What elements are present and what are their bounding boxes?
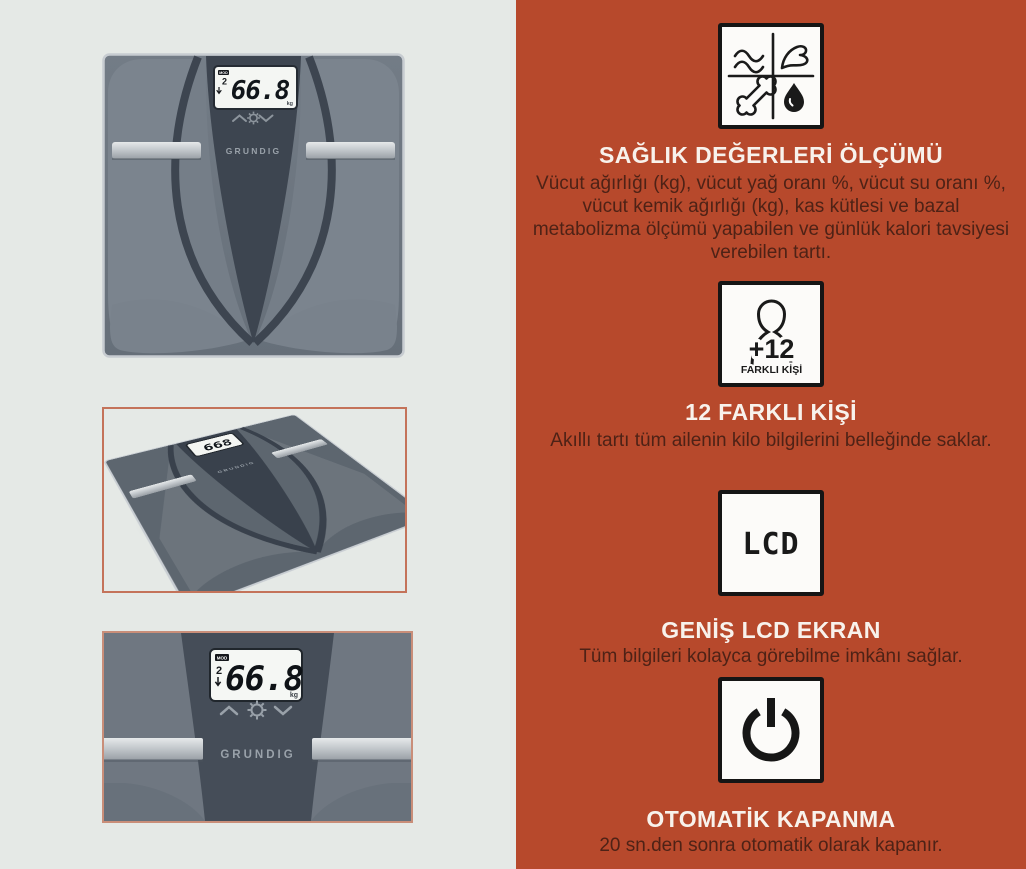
lcd-icon: LCD (722, 494, 820, 592)
user-number: 2 (222, 77, 227, 87)
weight-value: 66.8 (231, 76, 290, 106)
user-number: 2 (216, 665, 222, 677)
promo-page: MOD 2 66.8 kg GRUNDIG (0, 0, 1026, 869)
bone-icon (738, 76, 776, 114)
multi-user-icon-box: +12 FARKLI KİŞİ (718, 281, 824, 387)
muscle-arm-icon (782, 46, 807, 68)
brand-logo: GRUNDIG (220, 749, 295, 761)
feature-description: Akıllı tartı tüm ailenin kilo bilgilerin… (532, 429, 1010, 452)
scale-angled-graphic: 668 GRUNDIG (104, 414, 405, 591)
scale-closeup-graphic: MOD 2 66.8 kg GRUNDIG (104, 633, 411, 821)
health-metrics-icon (722, 27, 820, 125)
feature-description: Vücut ağırlığı (kg), vücut yağ oranı %, … (532, 172, 1010, 264)
water-drop-icon (784, 83, 804, 112)
feature-title: SAĞLIK DEĞERLERİ ÖLÇÜMÜ (516, 142, 1026, 168)
product-photo-top-view: MOD 2 66.8 kg GRUNDIG (102, 53, 405, 358)
feature-description: Tüm bilgileri kolayca görebilme imkânı s… (532, 645, 1010, 668)
product-photo-angled-view: 668 GRUNDIG (104, 409, 405, 591)
health-metrics-icon-box (718, 23, 824, 129)
brand-logo: GRUNDIG (226, 146, 282, 156)
product-photo-closeup-frame: MOD 2 66.8 kg GRUNDIG (102, 631, 413, 823)
electrode-strip-left (104, 738, 203, 760)
product-photos-panel: MOD 2 66.8 kg GRUNDIG (0, 0, 516, 869)
lcd-icon-box: LCD (718, 490, 824, 596)
feature-title: GENİŞ LCD EKRAN (516, 617, 1026, 643)
user-count-badge: +12 (749, 334, 795, 364)
product-photo-angled-frame: 668 GRUNDIG (102, 407, 407, 593)
svg-text:MOD: MOD (219, 71, 228, 75)
feature-title: 12 FARKLI KİŞİ (516, 399, 1026, 425)
electrode-strip-right (306, 142, 395, 159)
power-icon-box (718, 677, 824, 783)
scale-top-view-graphic: MOD 2 66.8 kg GRUNDIG (102, 53, 405, 358)
water-waves-icon (735, 51, 763, 62)
user-count-label: FARKLI KİŞİ (741, 363, 802, 376)
feature-title: OTOMATİK KAPANMA (516, 806, 1026, 832)
unit-label: kg (287, 101, 293, 107)
electrode-strip-left (112, 142, 201, 159)
multi-user-icon: +12 FARKLI KİŞİ (722, 285, 820, 383)
feature-description: 20 sn.den sonra otomatik olarak kapanır. (532, 834, 1010, 857)
unit-label: kg (290, 692, 298, 699)
lcd-glyph: LCD (742, 527, 799, 562)
features-panel: SAĞLIK DEĞERLERİ ÖLÇÜMÜ Vücut ağırlığı (… (516, 0, 1026, 869)
electrode-strip-right (312, 738, 411, 760)
power-icon (722, 681, 820, 779)
